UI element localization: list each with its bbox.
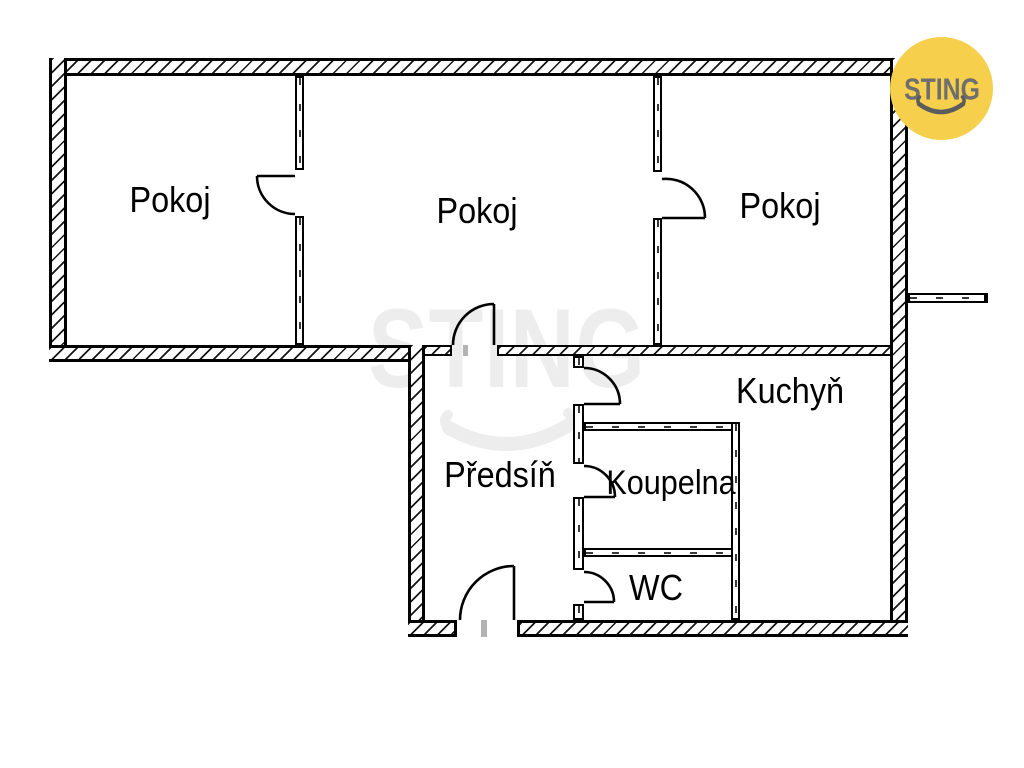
sting-logo-smile-icon [0,0,1024,768]
sting-logo: STING [0,0,1024,768]
floor-plan: STING [0,0,1024,768]
